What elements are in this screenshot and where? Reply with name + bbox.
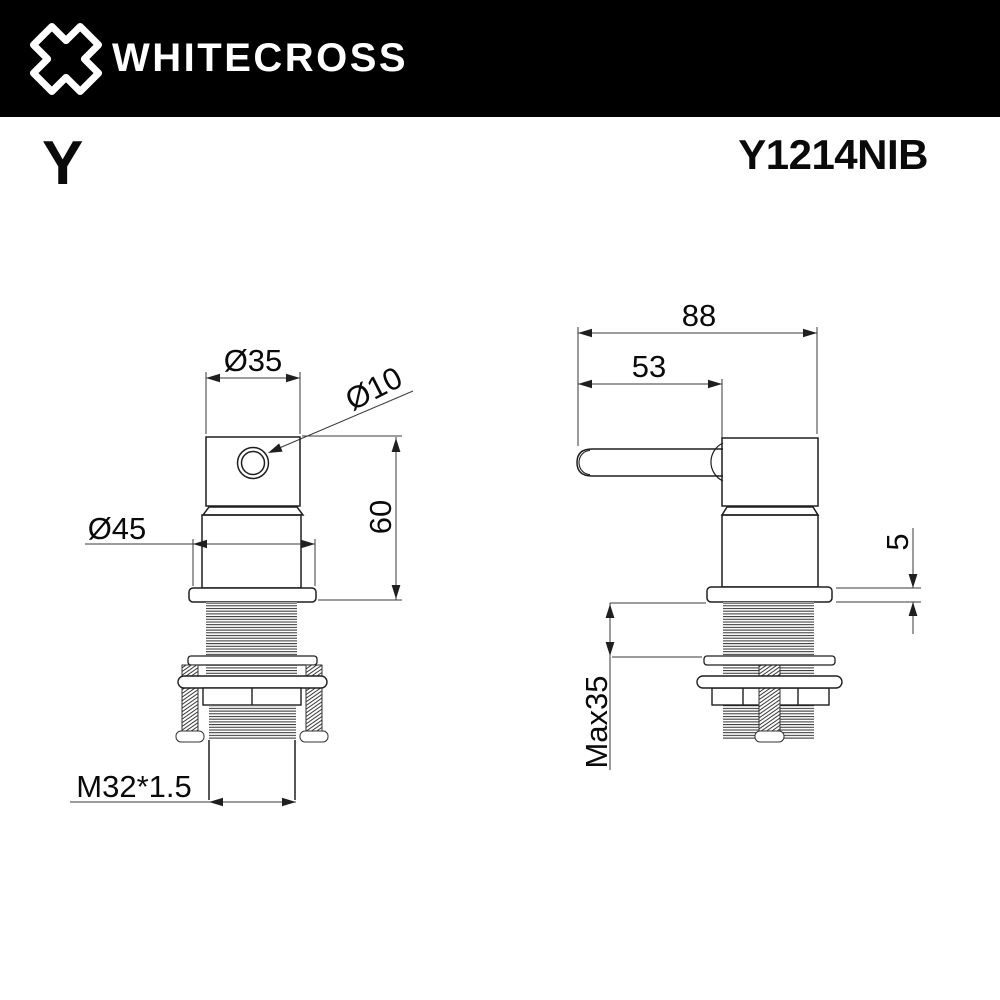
arrow-right-icon bbox=[803, 329, 817, 338]
arrow-up-icon bbox=[909, 602, 918, 616]
arrow-left-icon bbox=[193, 540, 207, 549]
side-flange bbox=[707, 587, 832, 602]
technical-drawing: Ø35 Ø10 bbox=[0, 0, 1000, 1000]
side-dim-depth bbox=[578, 327, 817, 446]
front-dim-body-diameter bbox=[85, 539, 315, 586]
front-threads bbox=[206, 602, 297, 740]
front-dim-hole-leader bbox=[268, 391, 413, 453]
arrow-right-icon bbox=[282, 798, 296, 807]
front-dim-height-label: 60 bbox=[363, 500, 398, 534]
spec-sheet-page: WHITECROSS Y Y1214NIB Ø3 bbox=[0, 0, 1000, 1000]
front-dim-top-diameter bbox=[206, 372, 300, 434]
arrow-left-icon bbox=[209, 798, 223, 807]
leader-arrow-icon bbox=[268, 443, 283, 453]
arrow-up-icon bbox=[392, 438, 401, 452]
front-dim-top-diameter-label: Ø35 bbox=[224, 343, 283, 378]
front-bottom-shank bbox=[209, 740, 295, 800]
side-dim-max-mounting-label: Max35 bbox=[579, 675, 614, 768]
arrow-down-icon bbox=[392, 585, 401, 599]
arrow-right-icon bbox=[301, 540, 315, 549]
arrow-left-icon bbox=[578, 380, 592, 389]
front-lock-nut bbox=[203, 688, 301, 705]
front-dim-hole-label: Ø10 bbox=[340, 360, 408, 418]
arrow-down-icon bbox=[909, 574, 918, 588]
side-body-outline bbox=[722, 438, 818, 587]
side-washer bbox=[704, 656, 835, 665]
front-retaining-plate bbox=[178, 676, 327, 688]
side-dim-handle-length-label: 53 bbox=[632, 349, 666, 384]
arrow-right-icon bbox=[286, 374, 300, 383]
front-dim-thread-label: M32*1.5 bbox=[76, 769, 191, 804]
arrow-left-icon bbox=[578, 329, 592, 338]
arrow-right-icon bbox=[708, 380, 722, 389]
arrow-up-icon bbox=[606, 604, 615, 618]
side-dim-handle-length bbox=[578, 379, 722, 443]
arrow-down-icon bbox=[606, 642, 615, 656]
side-retaining-plate bbox=[697, 676, 842, 688]
side-dim-flange-thickness-label: 5 bbox=[880, 533, 915, 550]
side-dim-depth-label: 88 bbox=[682, 298, 716, 333]
front-handle-hole bbox=[238, 448, 269, 479]
side-view: 88 53 bbox=[577, 298, 921, 770]
side-dim-max-mounting bbox=[606, 603, 706, 770]
front-body-outline bbox=[202, 437, 303, 588]
front-washer bbox=[188, 656, 317, 665]
side-handle bbox=[577, 443, 723, 481]
front-flange bbox=[189, 588, 316, 602]
front-view: Ø35 Ø10 bbox=[70, 343, 413, 806]
arrow-left-icon bbox=[206, 374, 220, 383]
front-dim-body-diameter-label: Ø45 bbox=[88, 511, 147, 546]
